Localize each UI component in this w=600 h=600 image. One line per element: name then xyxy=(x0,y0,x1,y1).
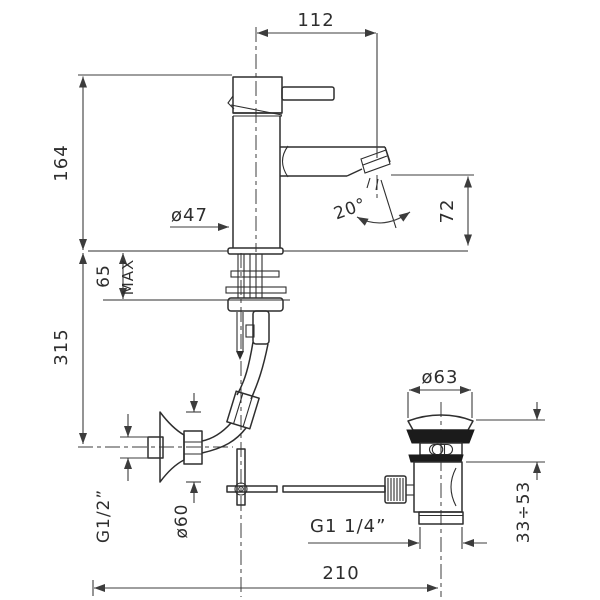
dim-210-label: 210 xyxy=(322,563,359,584)
faucet-dimension-drawing: 112 164 65 MAX 315 ø47 20° 72 ø63 xyxy=(0,0,600,600)
dim-3353-label: 33÷53 xyxy=(514,481,534,544)
dim-g114-label: G1 1/4” xyxy=(310,516,386,537)
dim-47-label: ø47 xyxy=(171,205,208,226)
dim-max-label: MAX xyxy=(119,259,137,295)
dim-63-label: ø63 xyxy=(422,367,459,388)
dim-164-label: 164 xyxy=(51,144,72,181)
dim-72-label: 72 xyxy=(437,199,458,224)
drawing-background xyxy=(0,0,600,600)
lower-gasket xyxy=(409,455,463,462)
dim-65-label: 65 xyxy=(94,264,114,288)
upper-gasket xyxy=(407,430,474,443)
dim-315-label: 315 xyxy=(51,328,72,365)
technical-drawing-canvas: 112 164 65 MAX 315 ø47 20° 72 ø63 xyxy=(0,0,600,600)
dim-g12-label: G1/2” xyxy=(94,489,114,543)
dim-112-label: 112 xyxy=(297,10,334,31)
dim-60-label: ø60 xyxy=(172,503,192,538)
